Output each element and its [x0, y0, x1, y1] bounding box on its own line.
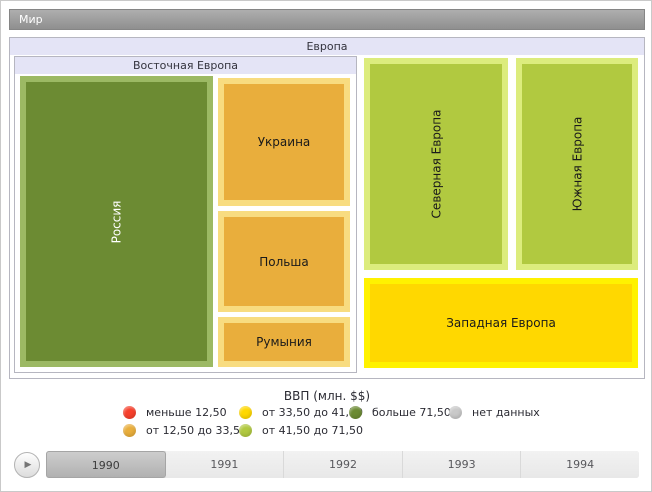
tile-label-western-europe: Западная Европа	[446, 316, 556, 330]
legend-item: от 12,50 до 33,50	[123, 423, 247, 438]
legend-dot-light-green	[239, 424, 252, 437]
tile-fill-southern-europe: Южная Европа	[522, 64, 632, 264]
play-button[interactable]: ▶	[14, 452, 40, 478]
year-segment-1993[interactable]: 1993	[403, 451, 522, 478]
legend-dot-dark-green	[349, 406, 362, 419]
tile-label-northern-europe: Северная Европа	[429, 110, 443, 219]
tile-fill-russia: Россия	[26, 82, 207, 361]
legend-item-label: нет данных	[472, 406, 540, 419]
legend-item: от 41,50 до 71,50	[239, 423, 363, 438]
treemap-tile-northern-europe[interactable]: Северная Европа	[364, 58, 508, 270]
legend-item-label: от 12,50 до 33,50	[146, 424, 247, 437]
tile-fill-northern-europe: Северная Европа	[370, 64, 502, 264]
treemap-widget: Мир Европа Восточная Европа Россия Украи…	[0, 0, 652, 492]
tile-label-romania: Румыния	[256, 335, 312, 349]
treemap-subgroup-eastern-europe: Восточная Европа Россия Украина Польша Р…	[14, 56, 357, 373]
legend-item-label: меньше 12,50	[146, 406, 227, 419]
legend-item-label: от 41,50 до 71,50	[262, 424, 363, 437]
legend-item-label: от 33,50 до 41,50	[262, 406, 363, 419]
legend-item-label: больше 71,50	[372, 406, 451, 419]
legend-dot-yellow	[239, 406, 252, 419]
treemap-tile-romania[interactable]: Румыния	[218, 317, 350, 367]
breadcrumb-root[interactable]: Мир	[9, 9, 645, 30]
legend-item: меньше 12,50	[123, 405, 227, 420]
tile-fill-western-europe: Западная Европа	[370, 284, 632, 362]
tile-label-russia: Россия	[109, 200, 123, 243]
treemap-tile-southern-europe[interactable]: Южная Европа	[516, 58, 638, 270]
tile-fill-poland: Польша	[224, 217, 344, 306]
subgroup-header-eastern-europe[interactable]: Восточная Европа	[15, 57, 356, 74]
treemap-tile-western-europe[interactable]: Западная Европа	[364, 278, 638, 368]
tile-fill-romania: Румыния	[224, 323, 344, 361]
year-segment-1992[interactable]: 1992	[284, 451, 403, 478]
play-icon: ▶	[25, 461, 32, 470]
treemap-tile-russia[interactable]: Россия	[20, 76, 213, 367]
tile-fill-ukraine: Украина	[224, 84, 344, 200]
legend-dot-red	[123, 406, 136, 419]
year-segment-1990[interactable]: 1990	[46, 451, 166, 478]
legend-dot-gray	[449, 406, 462, 419]
treemap-group-europe: Европа Восточная Европа Россия Украина П…	[9, 37, 645, 379]
tile-label-poland: Польша	[259, 255, 308, 269]
tile-label-ukraine: Украина	[258, 135, 311, 149]
group-header-europe[interactable]: Европа	[10, 38, 644, 55]
legend-dot-orange	[123, 424, 136, 437]
legend-item: больше 71,50	[349, 405, 451, 420]
legend-item: от 33,50 до 41,50	[239, 405, 363, 420]
year-segment-1994[interactable]: 1994	[521, 451, 639, 478]
timeline-year-bar: 1990 1991 1992 1993 1994	[46, 451, 639, 478]
treemap-tile-ukraine[interactable]: Украина	[218, 78, 350, 206]
treemap-tile-poland[interactable]: Польша	[218, 211, 350, 312]
year-segment-1991[interactable]: 1991	[166, 451, 285, 478]
tile-label-southern-europe: Южная Европа	[570, 117, 584, 212]
legend-title: ВВП (млн. $$)	[1, 389, 652, 403]
legend-item: нет данных	[449, 405, 540, 420]
